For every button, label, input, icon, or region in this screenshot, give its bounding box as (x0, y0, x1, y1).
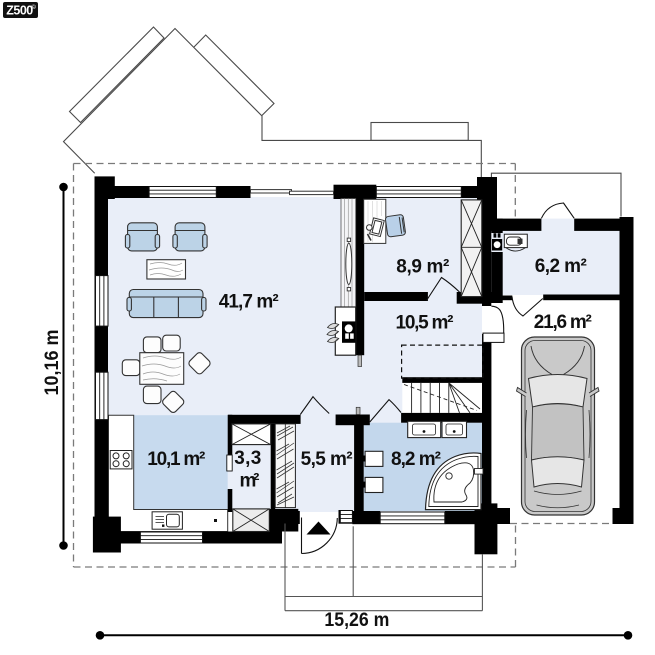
svg-text:Z500: Z500 (6, 4, 33, 18)
svg-text:10,5 m²: 10,5 m² (396, 313, 454, 334)
svg-text:m²: m² (240, 471, 260, 492)
svg-text:6,2 m²: 6,2 m² (535, 256, 587, 277)
svg-text:8,2 m²: 8,2 m² (391, 449, 441, 470)
svg-text:15,26 m: 15,26 m (324, 610, 389, 631)
svg-text:41,7 m²: 41,7 m² (219, 292, 279, 313)
svg-text:©: © (31, 3, 36, 11)
svg-text:8,9 m²: 8,9 m² (396, 257, 449, 278)
svg-text:3,3: 3,3 (234, 448, 261, 469)
svg-text:10,1 m²: 10,1 m² (147, 449, 205, 470)
svg-text:5,5 m²: 5,5 m² (301, 449, 353, 470)
svg-text:21,6 m²: 21,6 m² (534, 312, 592, 333)
svg-text:10,16 m: 10,16 m (42, 330, 63, 396)
